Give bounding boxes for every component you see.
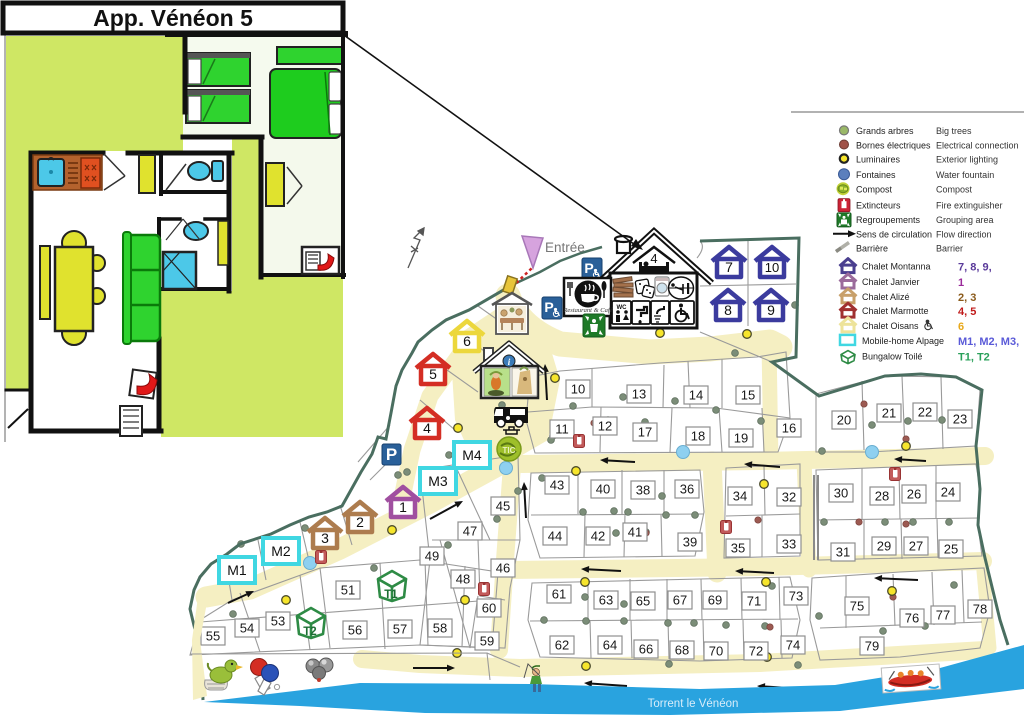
svg-text:2, 3: 2, 3: [958, 292, 976, 304]
svg-text:14: 14: [689, 388, 703, 403]
svg-text:M1: M1: [227, 562, 247, 578]
svg-text:21: 21: [882, 406, 896, 421]
svg-text:70: 70: [709, 644, 723, 659]
svg-text:16: 16: [782, 421, 796, 436]
svg-text:61: 61: [552, 587, 566, 602]
svg-text:75: 75: [850, 599, 864, 614]
svg-text:Restaurant & Café: Restaurant & Café: [562, 307, 613, 314]
svg-text:Barrière: Barrière: [856, 243, 888, 253]
svg-text:App. Vénéon 5: App. Vénéon 5: [93, 5, 253, 31]
svg-text:66: 66: [639, 642, 653, 657]
svg-text:Entrée: Entrée: [545, 240, 585, 255]
svg-text:46: 46: [496, 561, 510, 576]
svg-text:Exterior lighting: Exterior lighting: [936, 154, 998, 164]
svg-text:Big trees: Big trees: [936, 126, 972, 136]
svg-text:Sens de circulation: Sens de circulation: [856, 230, 932, 240]
svg-text:53: 53: [271, 614, 285, 629]
svg-text:33: 33: [782, 537, 796, 552]
svg-text:57: 57: [393, 622, 407, 637]
svg-text:49: 49: [425, 549, 439, 564]
svg-text:51: 51: [341, 583, 355, 598]
svg-text:P: P: [544, 299, 553, 315]
svg-text:10: 10: [765, 260, 779, 275]
svg-text:65: 65: [636, 594, 650, 609]
svg-text:72: 72: [749, 644, 763, 659]
svg-text:78: 78: [973, 602, 987, 617]
svg-text:41: 41: [628, 525, 642, 540]
svg-text:1: 1: [958, 277, 964, 289]
svg-text:67: 67: [673, 593, 687, 608]
svg-text:48: 48: [456, 572, 470, 587]
svg-text:29: 29: [877, 539, 891, 554]
svg-text:35: 35: [731, 541, 745, 556]
svg-text:Electrical connection: Electrical connection: [936, 140, 1019, 150]
svg-text:62: 62: [555, 638, 569, 653]
svg-text:6: 6: [463, 333, 471, 349]
svg-text:64: 64: [603, 638, 617, 653]
svg-text:26: 26: [907, 487, 921, 502]
svg-text:4, 5: 4, 5: [958, 306, 976, 318]
svg-text:25: 25: [944, 542, 958, 557]
svg-text:69: 69: [708, 593, 722, 608]
svg-text:55: 55: [206, 629, 220, 644]
svg-text:12: 12: [598, 419, 612, 434]
svg-text:54: 54: [240, 621, 254, 636]
svg-text:Luminaires: Luminaires: [856, 154, 901, 164]
svg-text:Grouping area: Grouping area: [936, 215, 994, 225]
svg-text:6: 6: [958, 321, 964, 333]
svg-text:P: P: [386, 445, 397, 464]
svg-text:68: 68: [675, 643, 689, 658]
svg-text:8: 8: [724, 302, 732, 318]
svg-text:60: 60: [482, 601, 496, 616]
svg-text:43: 43: [550, 478, 564, 493]
svg-text:11: 11: [555, 422, 569, 437]
svg-text:44: 44: [548, 529, 562, 544]
svg-text:Extincteurs: Extincteurs: [856, 201, 901, 211]
svg-text:19: 19: [734, 431, 748, 446]
svg-text:10: 10: [571, 382, 585, 397]
svg-text:73: 73: [789, 589, 803, 604]
svg-text:Chalet Janvier: Chalet Janvier: [862, 277, 920, 287]
svg-text:Fire extinguisher: Fire extinguisher: [936, 201, 1003, 211]
svg-text:TIC: TIC: [503, 446, 516, 455]
svg-text:M3: M3: [428, 473, 448, 489]
svg-text:31: 31: [836, 545, 850, 560]
svg-text:2: 2: [356, 514, 364, 530]
svg-text:Barrier: Barrier: [936, 243, 963, 253]
svg-text:18: 18: [691, 429, 705, 444]
svg-text:59: 59: [480, 634, 494, 649]
svg-text:M2: M2: [271, 543, 291, 559]
svg-text:76: 76: [905, 611, 919, 626]
svg-text:Torrent le Vénéon: Torrent le Vénéon: [648, 698, 739, 710]
svg-text:M4: M4: [462, 447, 482, 463]
svg-text:77: 77: [936, 608, 950, 623]
svg-text:63: 63: [599, 593, 613, 608]
svg-text:4: 4: [650, 251, 657, 266]
svg-text:Compost: Compost: [856, 185, 893, 195]
svg-text:9: 9: [767, 302, 775, 318]
svg-text:22: 22: [918, 405, 932, 420]
svg-text:3: 3: [321, 530, 329, 546]
svg-text:1: 1: [399, 499, 407, 515]
svg-text:Chalet Oisans: Chalet Oisans: [862, 321, 919, 331]
svg-text:Compost: Compost: [936, 185, 973, 195]
svg-text:Chalet Marmotte: Chalet Marmotte: [862, 306, 929, 316]
svg-text:Flow direction: Flow direction: [936, 230, 992, 240]
svg-text:45: 45: [496, 499, 510, 514]
svg-text:71: 71: [747, 594, 761, 609]
svg-text:Regroupements: Regroupements: [856, 215, 921, 225]
svg-text:74: 74: [786, 638, 800, 653]
svg-text:36: 36: [680, 482, 694, 497]
svg-text:23: 23: [953, 412, 967, 427]
svg-text:32: 32: [782, 490, 796, 505]
svg-text:Water fountain: Water fountain: [936, 170, 994, 180]
svg-text:34: 34: [733, 489, 747, 504]
svg-text:P: P: [584, 260, 593, 276]
svg-text:42: 42: [591, 529, 605, 544]
svg-text:7, 8, 9,: 7, 8, 9,: [958, 262, 992, 274]
svg-text:T2: T2: [303, 626, 316, 638]
svg-text:M1, M2, M3,: M1, M2, M3,: [958, 336, 1019, 348]
svg-text:Chalet Alizé: Chalet Alizé: [862, 292, 910, 302]
svg-text:7: 7: [725, 259, 733, 275]
svg-text:47: 47: [463, 524, 477, 539]
svg-text:38: 38: [636, 483, 650, 498]
svg-text:5: 5: [429, 366, 437, 382]
svg-text:13: 13: [632, 387, 646, 402]
svg-text:Grands arbres: Grands arbres: [856, 126, 914, 136]
svg-text:T1: T1: [384, 589, 398, 601]
svg-text:WC: WC: [617, 305, 628, 311]
svg-text:Fontaines: Fontaines: [856, 170, 896, 180]
svg-text:Bungalow Toilé: Bungalow Toilé: [862, 352, 922, 362]
svg-text:Chalet Montanna: Chalet Montanna: [862, 262, 931, 272]
svg-text:39: 39: [683, 535, 697, 550]
svg-text:24: 24: [941, 485, 955, 500]
svg-text:58: 58: [433, 621, 447, 636]
svg-text:15: 15: [741, 388, 755, 403]
svg-text:27: 27: [909, 539, 923, 554]
svg-text:56: 56: [348, 623, 362, 638]
svg-text:17: 17: [638, 425, 652, 440]
svg-text:28: 28: [875, 489, 889, 504]
svg-text:T1, T2: T1, T2: [958, 352, 990, 364]
svg-text:4: 4: [423, 420, 431, 436]
svg-text:30: 30: [834, 486, 848, 501]
svg-text:Bornes électriques: Bornes électriques: [856, 140, 931, 150]
svg-text:40: 40: [596, 482, 610, 497]
svg-text:20: 20: [837, 413, 851, 428]
svg-text:Mobile-home Alpage: Mobile-home Alpage: [862, 336, 944, 346]
svg-text:79: 79: [865, 639, 879, 654]
